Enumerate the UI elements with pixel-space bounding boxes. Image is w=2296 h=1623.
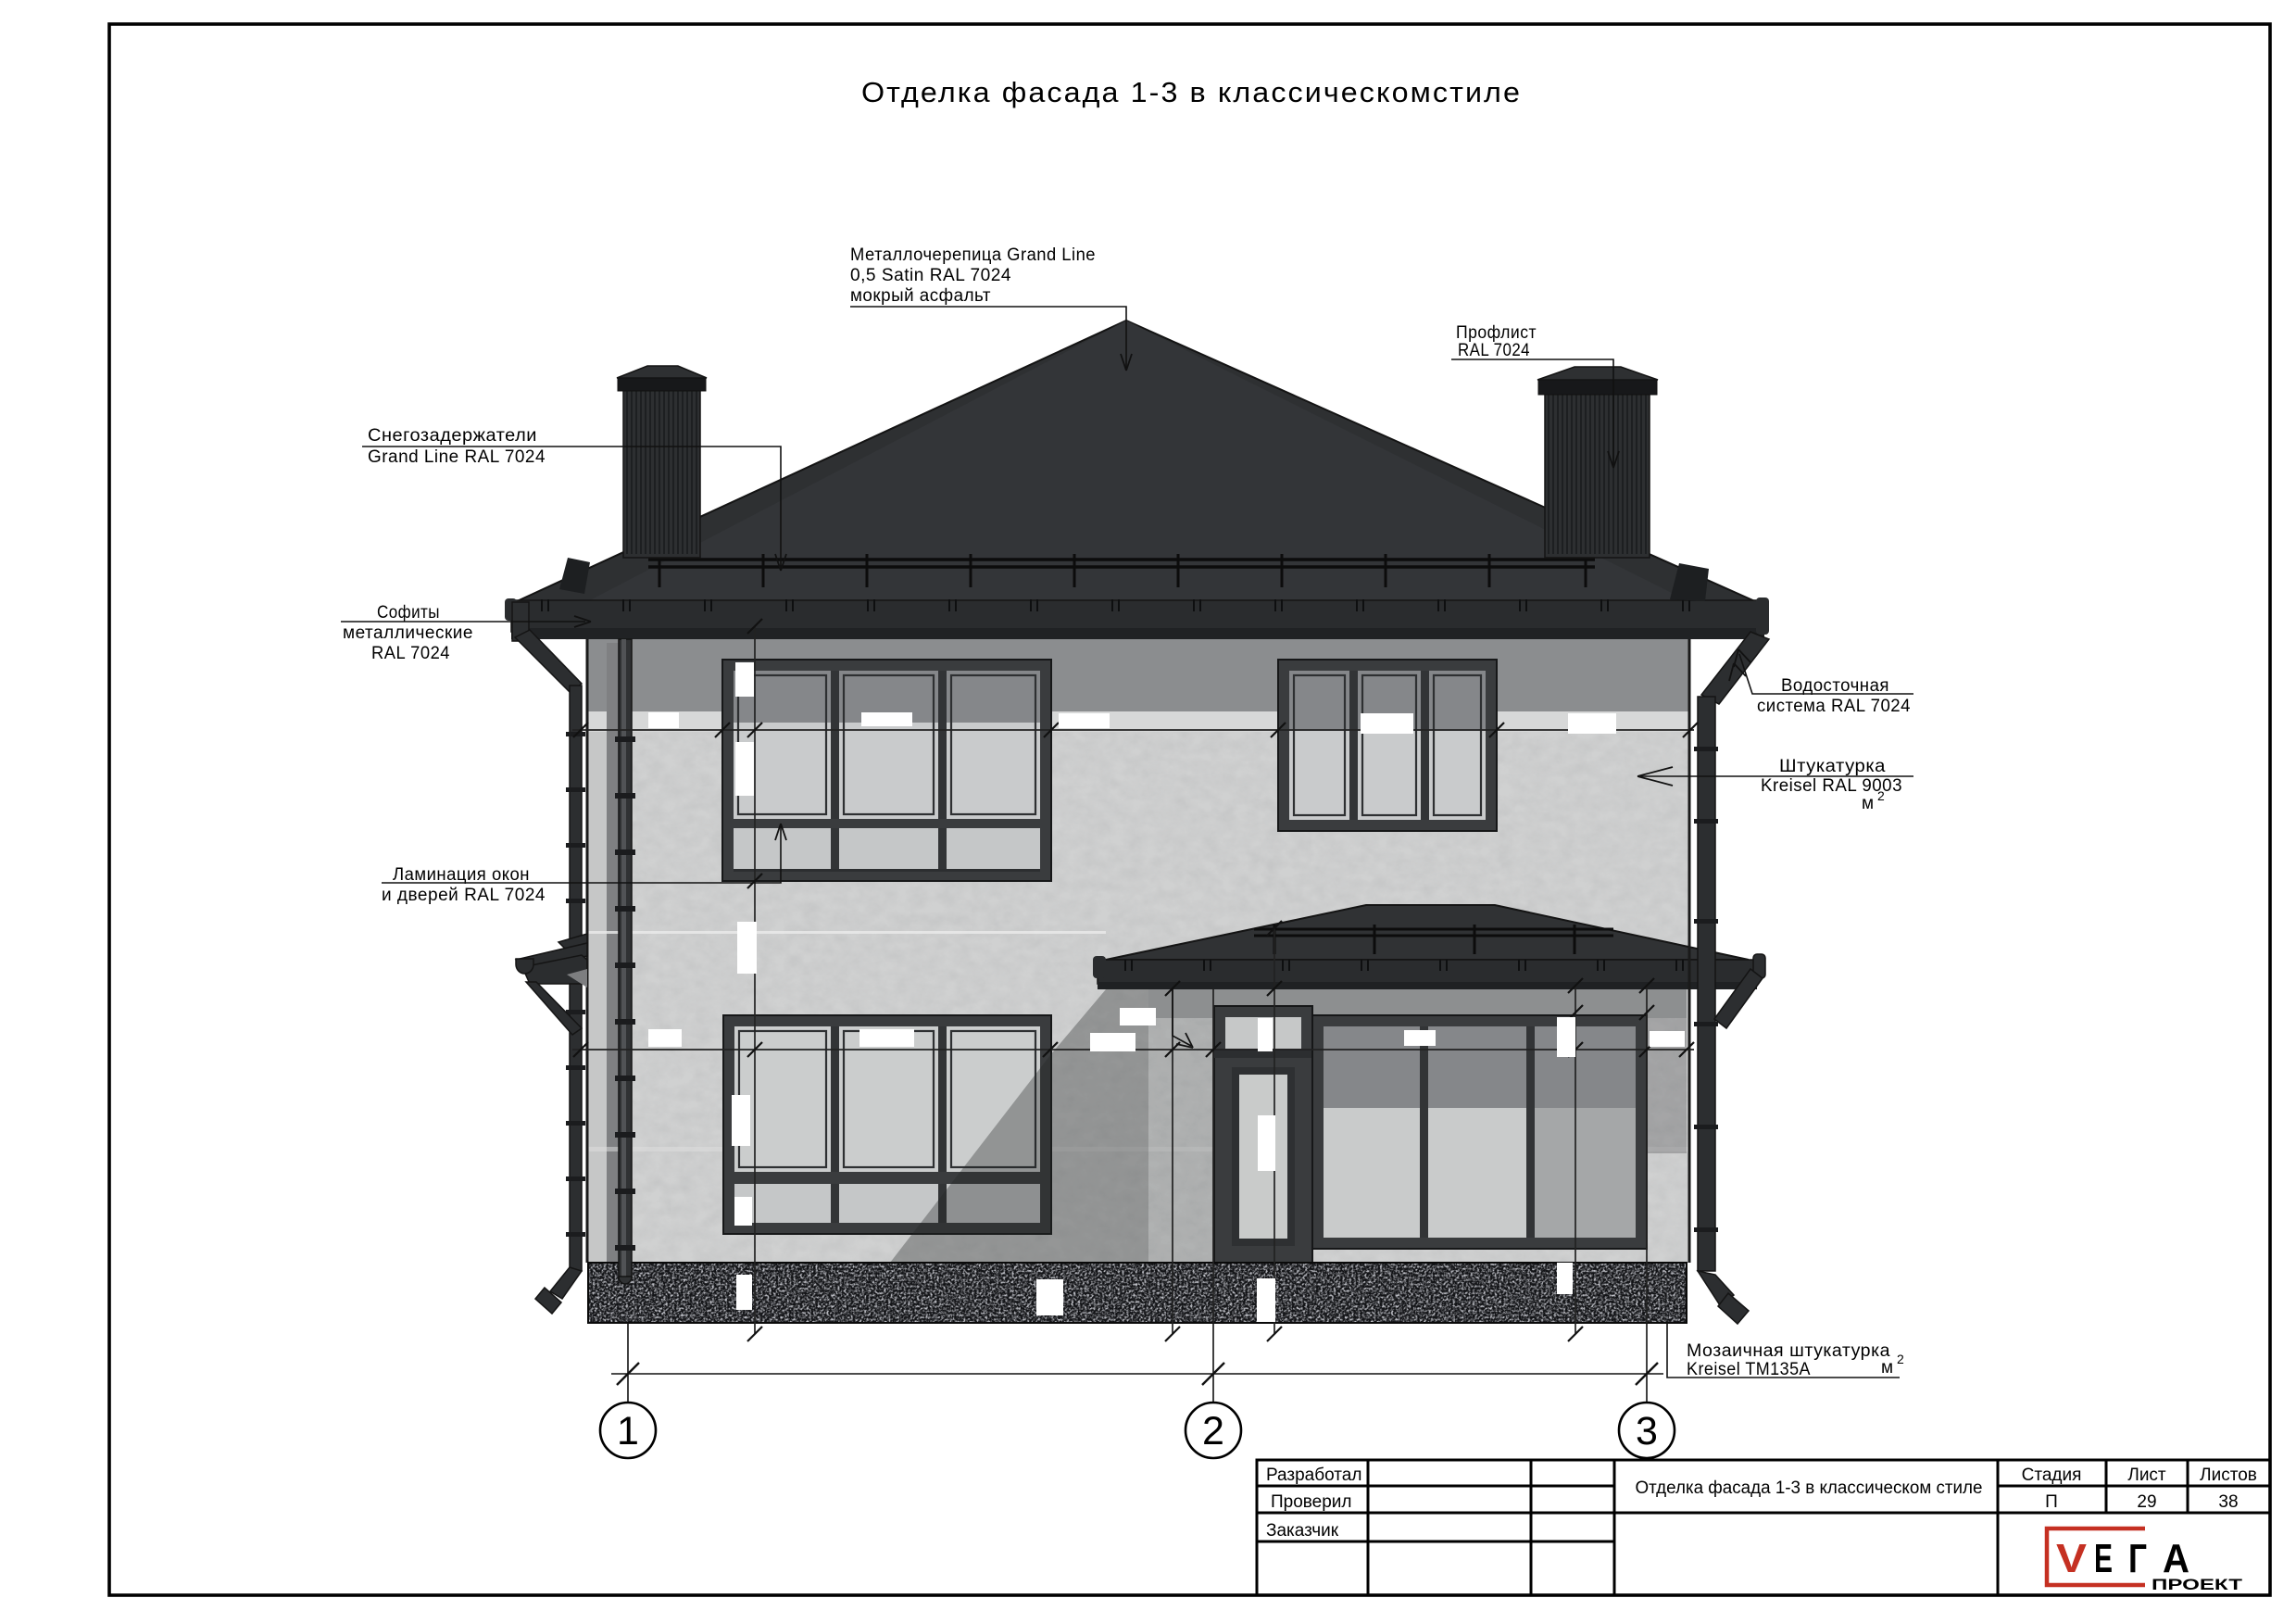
- svg-text:П: П: [2045, 1492, 2058, 1512]
- svg-text:RAL 7024: RAL 7024: [1458, 341, 1530, 360]
- svg-text:38: 38: [2218, 1492, 2238, 1512]
- svg-text:Стадия: Стадия: [2022, 1466, 2082, 1485]
- svg-text:Заказчик: Заказчик: [1266, 1521, 1339, 1541]
- svg-text:Лист: Лист: [2127, 1466, 2166, 1485]
- svg-text:Металлочерепица Grand Line: Металлочерепица Grand Line: [850, 245, 1096, 265]
- svg-text:Снегозадержатели: Снегозадержатели: [368, 426, 537, 446]
- svg-text:Штукатурка: Штукатурка: [1779, 757, 1886, 776]
- svg-text:система RAL 7024: система RAL 7024: [1757, 697, 1911, 716]
- svg-text:Е: Е: [2094, 1536, 2113, 1581]
- svg-text:Мозаичная штукатурка: Мозаичная штукатурка: [1687, 1341, 1890, 1361]
- svg-text:и дверей RAL 7024: и дверей RAL 7024: [382, 886, 546, 905]
- svg-text:2: 2: [1877, 788, 1885, 803]
- svg-text:металлические: металлические: [343, 623, 473, 643]
- svg-text:Проверил: Проверил: [1271, 1492, 1352, 1512]
- svg-text:2: 2: [1897, 1352, 1904, 1366]
- svg-text:1: 1: [617, 1409, 639, 1453]
- svg-text:Водосточная: Водосточная: [1781, 676, 1889, 696]
- svg-text:Отделка фасада 1-3 в классичес: Отделка фасада 1-3 в классическом стиле: [1636, 1478, 1983, 1498]
- svg-text:29: 29: [2137, 1492, 2156, 1512]
- svg-text:Г: Г: [2128, 1536, 2147, 1581]
- svg-text:м: м: [1881, 1358, 1894, 1378]
- svg-text:2: 2: [1202, 1409, 1224, 1453]
- svg-text:Софиты: Софиты: [377, 603, 440, 623]
- svg-text:Листов: Листов: [2200, 1466, 2257, 1485]
- svg-text:RAL 7024: RAL 7024: [371, 644, 450, 663]
- svg-text:Ламинация окон: Ламинация окон: [393, 865, 530, 885]
- svg-text:Профлист: Профлист: [1456, 323, 1537, 343]
- svg-text:м: м: [1862, 794, 1875, 813]
- svg-text:Kreisel TM135A: Kreisel TM135A: [1687, 1360, 1811, 1379]
- svg-text:мокрый асфальт: мокрый асфальт: [850, 286, 991, 306]
- svg-text:0,5 Satin RAL 7024: 0,5 Satin RAL 7024: [850, 266, 1011, 285]
- svg-text:V: V: [2056, 1536, 2088, 1581]
- svg-text:Grand Line RAL 7024: Grand Line RAL 7024: [368, 447, 546, 467]
- svg-text:Разработал: Разработал: [1266, 1466, 1361, 1485]
- svg-text:3: 3: [1636, 1409, 1658, 1453]
- svg-text:ПРОЕКТ: ПРОЕКТ: [2152, 1576, 2243, 1593]
- svg-text:А: А: [2163, 1536, 2189, 1581]
- svg-text:Отделка фасада 1-3 в классичес: Отделка фасада 1-3 в классическомстиле: [861, 76, 1522, 108]
